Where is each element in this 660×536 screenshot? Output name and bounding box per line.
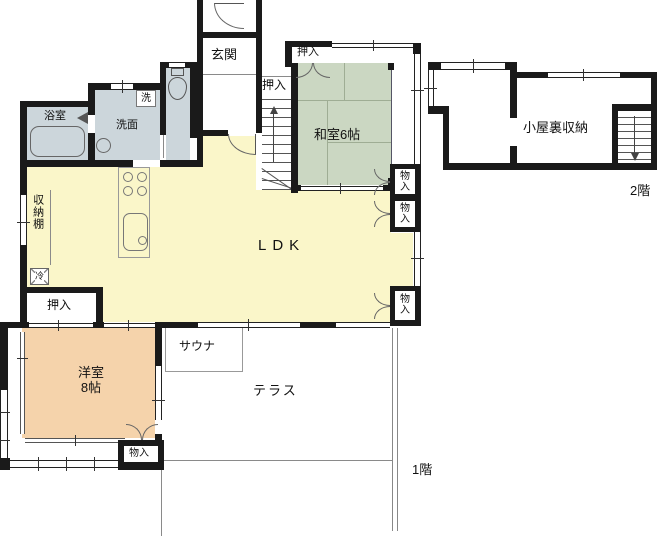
window-2f-left	[428, 70, 434, 108]
wall-2f-top-left	[428, 62, 441, 70]
label-monoiri-2: 物入	[397, 202, 409, 226]
label-floor-1: 1階	[412, 463, 432, 478]
window-youshitsu-top	[104, 323, 155, 328]
wall-ldk-top-left	[20, 160, 133, 167]
tatami-line	[344, 63, 345, 100]
window-tick	[17, 358, 28, 359]
window-tick	[473, 59, 474, 73]
window-tick	[583, 69, 584, 81]
label-monoiri-3: 物入	[397, 293, 409, 319]
label-youshitsu-size: 8帖	[56, 381, 126, 396]
shoji-youshitsu-left	[20, 332, 25, 434]
fusuma-oshiire-youshitsu	[29, 323, 93, 328]
stairs-down-arrowhead	[631, 153, 639, 161]
room-ldk	[391, 233, 413, 288]
window-youshitsu-right	[155, 366, 162, 420]
window-tick	[0, 412, 10, 413]
stairs-up-arrowhead	[270, 106, 278, 114]
wall-youshitsu-right	[155, 322, 162, 366]
room-ldk	[291, 190, 391, 322]
window-right-upper	[414, 54, 421, 167]
label-shelf: 収納棚	[31, 194, 44, 266]
wall-toilet-right	[190, 62, 197, 138]
toilet-tank-icon	[171, 68, 184, 76]
label-laundry: 洗	[141, 93, 151, 105]
label-monoiri-bottom: 物入	[129, 448, 149, 460]
toilet-door-line	[163, 135, 164, 158]
window-tick	[128, 320, 129, 331]
shelf-divider-line	[50, 190, 51, 265]
window-ldk-bottom	[198, 322, 300, 328]
label-floor-2: 2階	[630, 184, 650, 199]
window-tick	[373, 40, 374, 51]
label-attic: 小屋裏収納	[523, 121, 588, 136]
window-ldk-left	[20, 195, 27, 245]
wall-outer-left-mid	[20, 287, 27, 328]
label-terrace: テラス	[253, 384, 298, 399]
window-2f-top-right	[548, 72, 620, 78]
wall-oshiire-bl-top	[24, 287, 103, 293]
kitchen-sink-icon	[123, 213, 148, 251]
wall-outer-left-lower	[0, 322, 8, 390]
wall-2f-right	[651, 72, 657, 170]
bathtub-icon	[30, 126, 85, 157]
washbasin-icon	[96, 138, 111, 153]
shoji-washitsu-ldk	[301, 186, 383, 191]
wall-genkan-right	[256, 0, 262, 133]
wall-ldk-bottom	[300, 322, 336, 328]
wall-oshiire-left-nub	[285, 41, 292, 67]
label-oshiire-stairs: 押入	[262, 79, 286, 93]
window-tick	[152, 400, 165, 401]
label-ldk: LDK	[258, 237, 305, 254]
window-tick	[38, 457, 39, 471]
oshiire-stairs-divider	[262, 76, 291, 77]
window-ldk-bottom	[336, 322, 390, 328]
front-door-arc	[214, 3, 244, 29]
wall-2f-interior-upper	[510, 62, 517, 118]
wall-bath-divider-upper	[88, 107, 95, 115]
window-tick	[66, 457, 67, 471]
tatami-line	[298, 100, 391, 101]
label-washitsu: 和室6帖	[314, 128, 360, 143]
window-tick	[411, 258, 424, 259]
label-youshitsu: 洋室 8帖	[56, 366, 126, 396]
wall-bath-top	[20, 101, 95, 107]
room-ldk	[256, 190, 291, 322]
wall-washroom-jog	[88, 83, 95, 108]
label-washroom: 洗面	[116, 119, 138, 132]
window-tick	[340, 183, 341, 194]
stairs-up-arrow	[273, 114, 274, 162]
window-tick	[75, 435, 76, 446]
partition-nub	[388, 63, 394, 70]
wall-oshiire-bl-right	[96, 293, 103, 328]
stove-burner-icon	[123, 172, 133, 182]
terrace-edge-left	[161, 461, 162, 536]
label-oshiire-washitsu: 押入	[297, 46, 319, 59]
label-youshitsu-name: 洋室	[56, 366, 126, 381]
terrace-edge-right	[392, 328, 398, 531]
wall-monoiri-bottom-frame	[118, 462, 164, 470]
window-outer-bottom	[10, 460, 118, 468]
label-fridge: 冷	[35, 271, 44, 281]
window-tick	[94, 457, 95, 471]
wall-genkan-left	[197, 38, 203, 167]
window-tick	[424, 88, 437, 89]
window-outer-left-lower	[0, 390, 8, 458]
window-tick	[411, 90, 424, 91]
wall-ne-corner	[413, 43, 421, 54]
stove-burner-icon	[137, 172, 147, 182]
window-toilet	[169, 62, 185, 68]
stairs-down-arrow	[634, 116, 635, 154]
window-tick	[122, 80, 123, 93]
wall-2f-bottom	[443, 163, 657, 170]
label-monoiri-1: 物入	[397, 170, 409, 194]
window-tick	[58, 320, 59, 331]
wall-stairs-washitsu	[291, 63, 298, 193]
faucet-icon	[138, 236, 147, 245]
wall-bath-divider-lower	[88, 133, 95, 161]
terrace-edge-bottom	[163, 460, 392, 461]
wall-washitsu-bottom-nub	[291, 185, 301, 191]
label-oshiire-bl: 押入	[47, 299, 71, 313]
label-bath: 浴室	[44, 110, 66, 123]
stove-burner-icon	[137, 186, 147, 196]
label-genkan: 玄関	[211, 48, 237, 63]
window-tick	[248, 319, 249, 331]
wall-sw-corner	[0, 458, 10, 470]
wall-2f-left-lower	[443, 112, 449, 170]
label-sauna: サウナ	[179, 340, 215, 354]
window-tick	[0, 440, 10, 441]
floor-plan-canvas: 玄関 押入 押入 和室6帖 物入 物入 物入 浴室 洗 洗面 収納棚 冷 LDK…	[0, 0, 660, 536]
window-2f-top-left	[441, 62, 507, 70]
window-right-mid	[414, 232, 421, 288]
genkan-step-line	[203, 74, 256, 75]
wall-2f-top-right	[510, 72, 548, 78]
window-tick	[17, 222, 30, 223]
wall-porch-genkan	[197, 32, 262, 38]
stair-landing-line	[262, 99, 291, 100]
bath-door-icon	[77, 112, 88, 124]
wall-ldk-top-right	[160, 160, 203, 167]
wall-toilet-left	[160, 62, 166, 135]
stove-burner-icon	[123, 186, 133, 196]
